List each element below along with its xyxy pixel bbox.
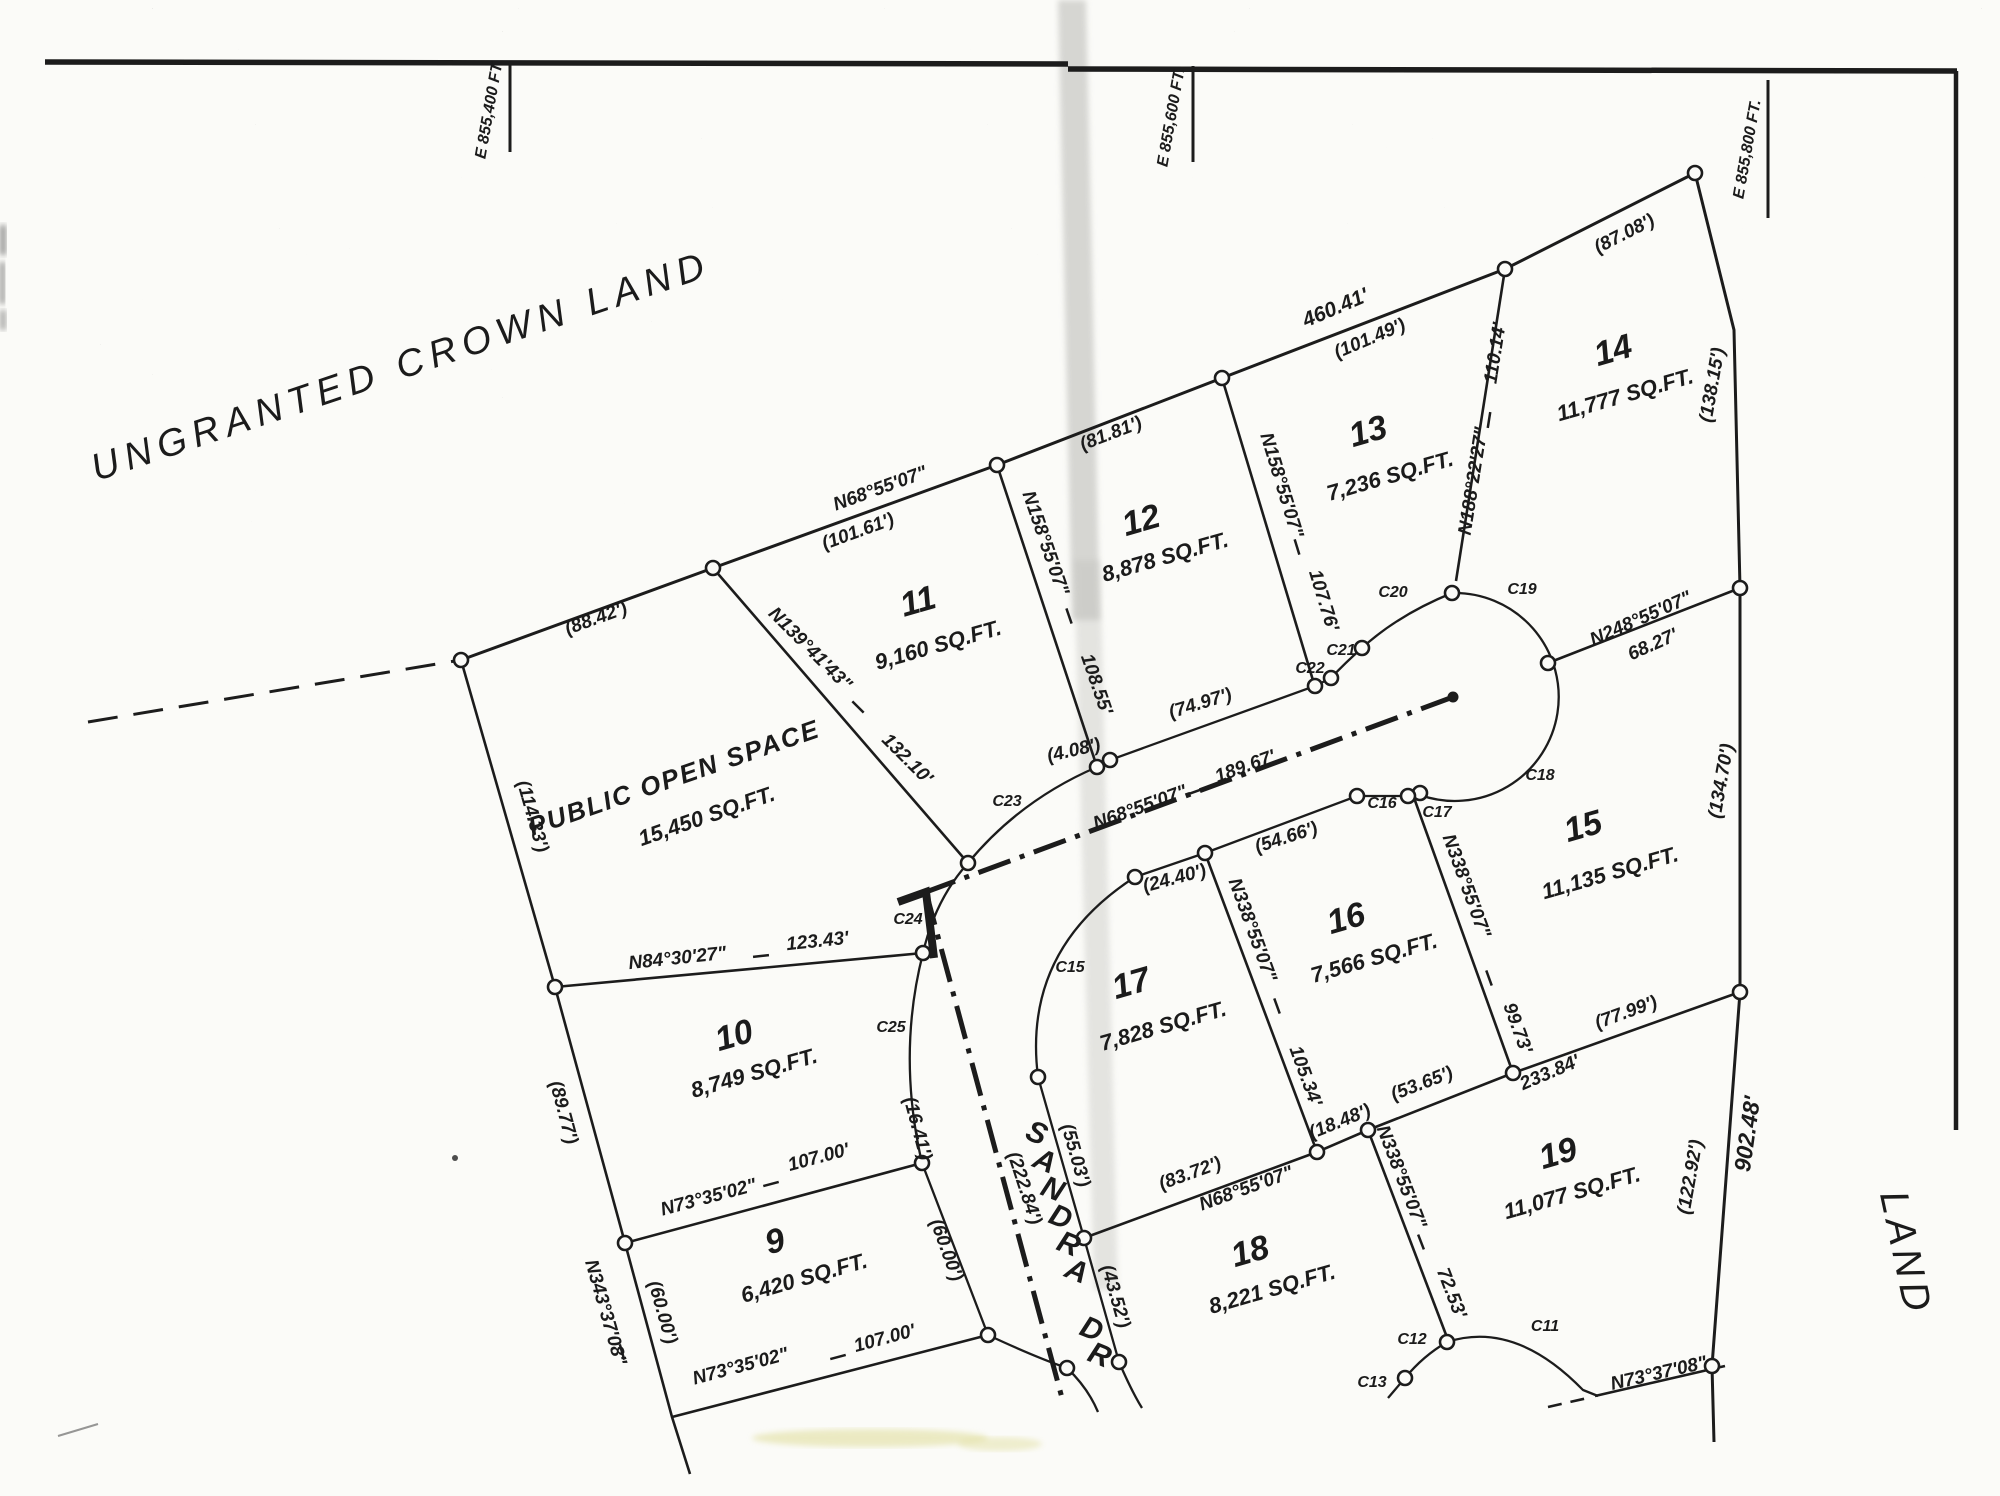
vertex-marker <box>1440 1335 1454 1349</box>
vertex-marker <box>1498 262 1512 276</box>
vertex-marker <box>981 1328 995 1342</box>
vertex-marker <box>1733 985 1747 999</box>
curve-c21: C21 <box>1326 642 1355 659</box>
vertex-marker <box>961 856 975 870</box>
vertex-marker <box>1060 1361 1074 1375</box>
vertex-marker <box>706 561 720 575</box>
survey-plat-sheet: E 855,400 FT. E 855,600 FT. E 855,800 FT… <box>0 0 2000 1496</box>
top-border-line <box>45 62 1068 64</box>
curve-c25: C25 <box>876 1019 906 1036</box>
dimension-tick <box>753 955 769 957</box>
vertex-marker <box>1090 760 1104 774</box>
vertex-marker <box>1445 586 1459 600</box>
curve-c19: C19 <box>1507 581 1536 598</box>
curve-c20: C20 <box>1378 584 1407 601</box>
vertex-marker <box>1733 581 1747 595</box>
top-border-line-right <box>1068 69 1957 71</box>
vertex-marker <box>1103 753 1117 767</box>
vertex-marker <box>1310 1145 1324 1159</box>
paper-noise-top <box>700 0 2000 260</box>
curve-c13: C13 <box>1357 1374 1386 1391</box>
curve-c23: C23 <box>992 793 1021 810</box>
vertex-marker <box>1398 1371 1412 1385</box>
plat-map: E 855,400 FT. E 855,600 FT. E 855,800 FT… <box>0 0 2000 1496</box>
vertex-marker <box>1401 789 1415 803</box>
curve-c22: C22 <box>1295 660 1324 677</box>
vertex-marker <box>1688 166 1702 180</box>
vertex-marker <box>454 653 468 667</box>
vertex-marker <box>1324 671 1338 685</box>
vertex-marker <box>548 980 562 994</box>
vertex-marker <box>1308 679 1322 693</box>
vertex-marker <box>1541 656 1555 670</box>
vertex-marker <box>1031 1070 1045 1084</box>
curve-c17: C17 <box>1422 804 1452 821</box>
vertex-marker <box>1112 1355 1126 1369</box>
curve-c11: C11 <box>1531 1318 1559 1335</box>
vertex-marker <box>1215 371 1229 385</box>
vertex-marker <box>916 946 930 960</box>
vertex-marker <box>1350 789 1364 803</box>
vertex-marker <box>1198 846 1212 860</box>
curve-c12: C12 <box>1397 1331 1426 1348</box>
cul-de-sac-center-point <box>1448 692 1459 703</box>
curve-c24: C24 <box>893 911 922 928</box>
curve-c15: C15 <box>1055 959 1085 976</box>
vertex-marker <box>618 1236 632 1250</box>
vertex-marker <box>1355 641 1369 655</box>
curve-c18: C18 <box>1525 767 1554 784</box>
curve-c16: C16 <box>1367 795 1396 812</box>
vertex-marker <box>990 458 1004 472</box>
